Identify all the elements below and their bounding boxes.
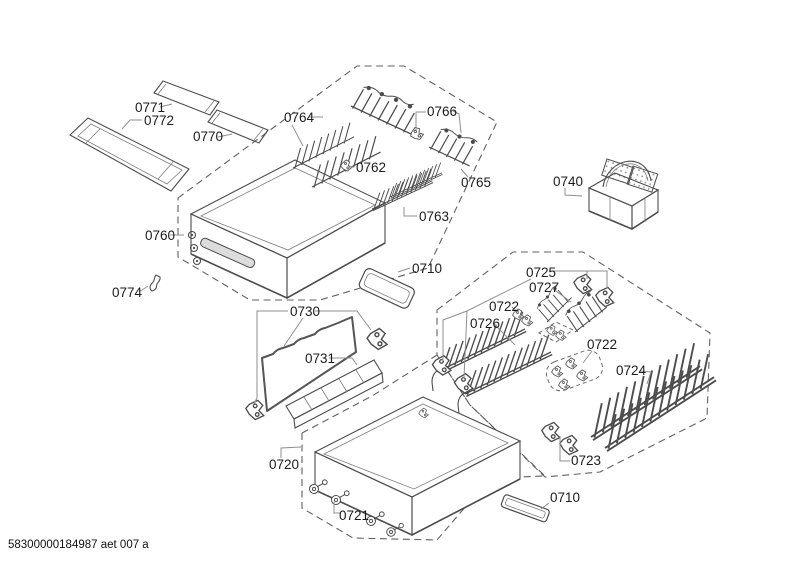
callout-0722-mid: 0722 <box>587 337 617 352</box>
upper-rack-drawing <box>189 160 386 298</box>
clip-0774 <box>150 275 160 291</box>
callout-0726: 0726 <box>470 316 500 331</box>
callout-0760: 0760 <box>145 228 175 243</box>
wire-frame-0730 <box>244 317 390 421</box>
cutlery-basket-drawing <box>589 159 658 229</box>
folding-tine-row-0766 <box>428 124 480 168</box>
callout-0710-bottom: 0710 <box>550 490 580 505</box>
callout-0725: 0725 <box>526 265 556 280</box>
clip-0766-bearing <box>409 126 425 142</box>
callout-0762: 0762 <box>356 160 386 175</box>
parts-diagram-page: 0771 0772 0770 0760 0774 0764 0762 0766 … <box>0 0 800 566</box>
callout-0722-top: 0722 <box>489 299 519 314</box>
callout-0764: 0764 <box>284 110 315 125</box>
callout-0723: 0723 <box>571 453 601 468</box>
callout-0724: 0724 <box>616 363 647 378</box>
exploded-parts-drawing: 0771 0772 0770 0760 0774 0764 0762 0766 … <box>0 0 800 566</box>
document-code: 58300000184987 aet 007 a <box>8 539 149 551</box>
callout-0720: 0720 <box>269 457 299 472</box>
callout-0774: 0774 <box>112 285 143 300</box>
tray-0710-top <box>358 267 416 310</box>
callout-0710-top: 0710 <box>412 261 442 276</box>
callout-0770: 0770 <box>193 129 223 144</box>
callout-0765: 0765 <box>461 175 491 190</box>
callout-0731: 0731 <box>305 351 335 366</box>
callout-0740: 0740 <box>553 174 583 189</box>
shelf-insert-0772 <box>70 118 189 191</box>
folding-tine-row-center <box>350 81 424 137</box>
callout-0730: 0730 <box>290 304 320 319</box>
callout-0772: 0772 <box>144 113 174 128</box>
clips-0722-set <box>543 347 606 394</box>
callout-0766: 0766 <box>427 104 457 119</box>
callout-0721: 0721 <box>339 508 369 523</box>
clip-0762 <box>341 160 352 171</box>
callout-0763: 0763 <box>419 209 449 224</box>
folding-shelf-0731 <box>286 360 383 428</box>
callout-0727: 0727 <box>529 280 559 295</box>
